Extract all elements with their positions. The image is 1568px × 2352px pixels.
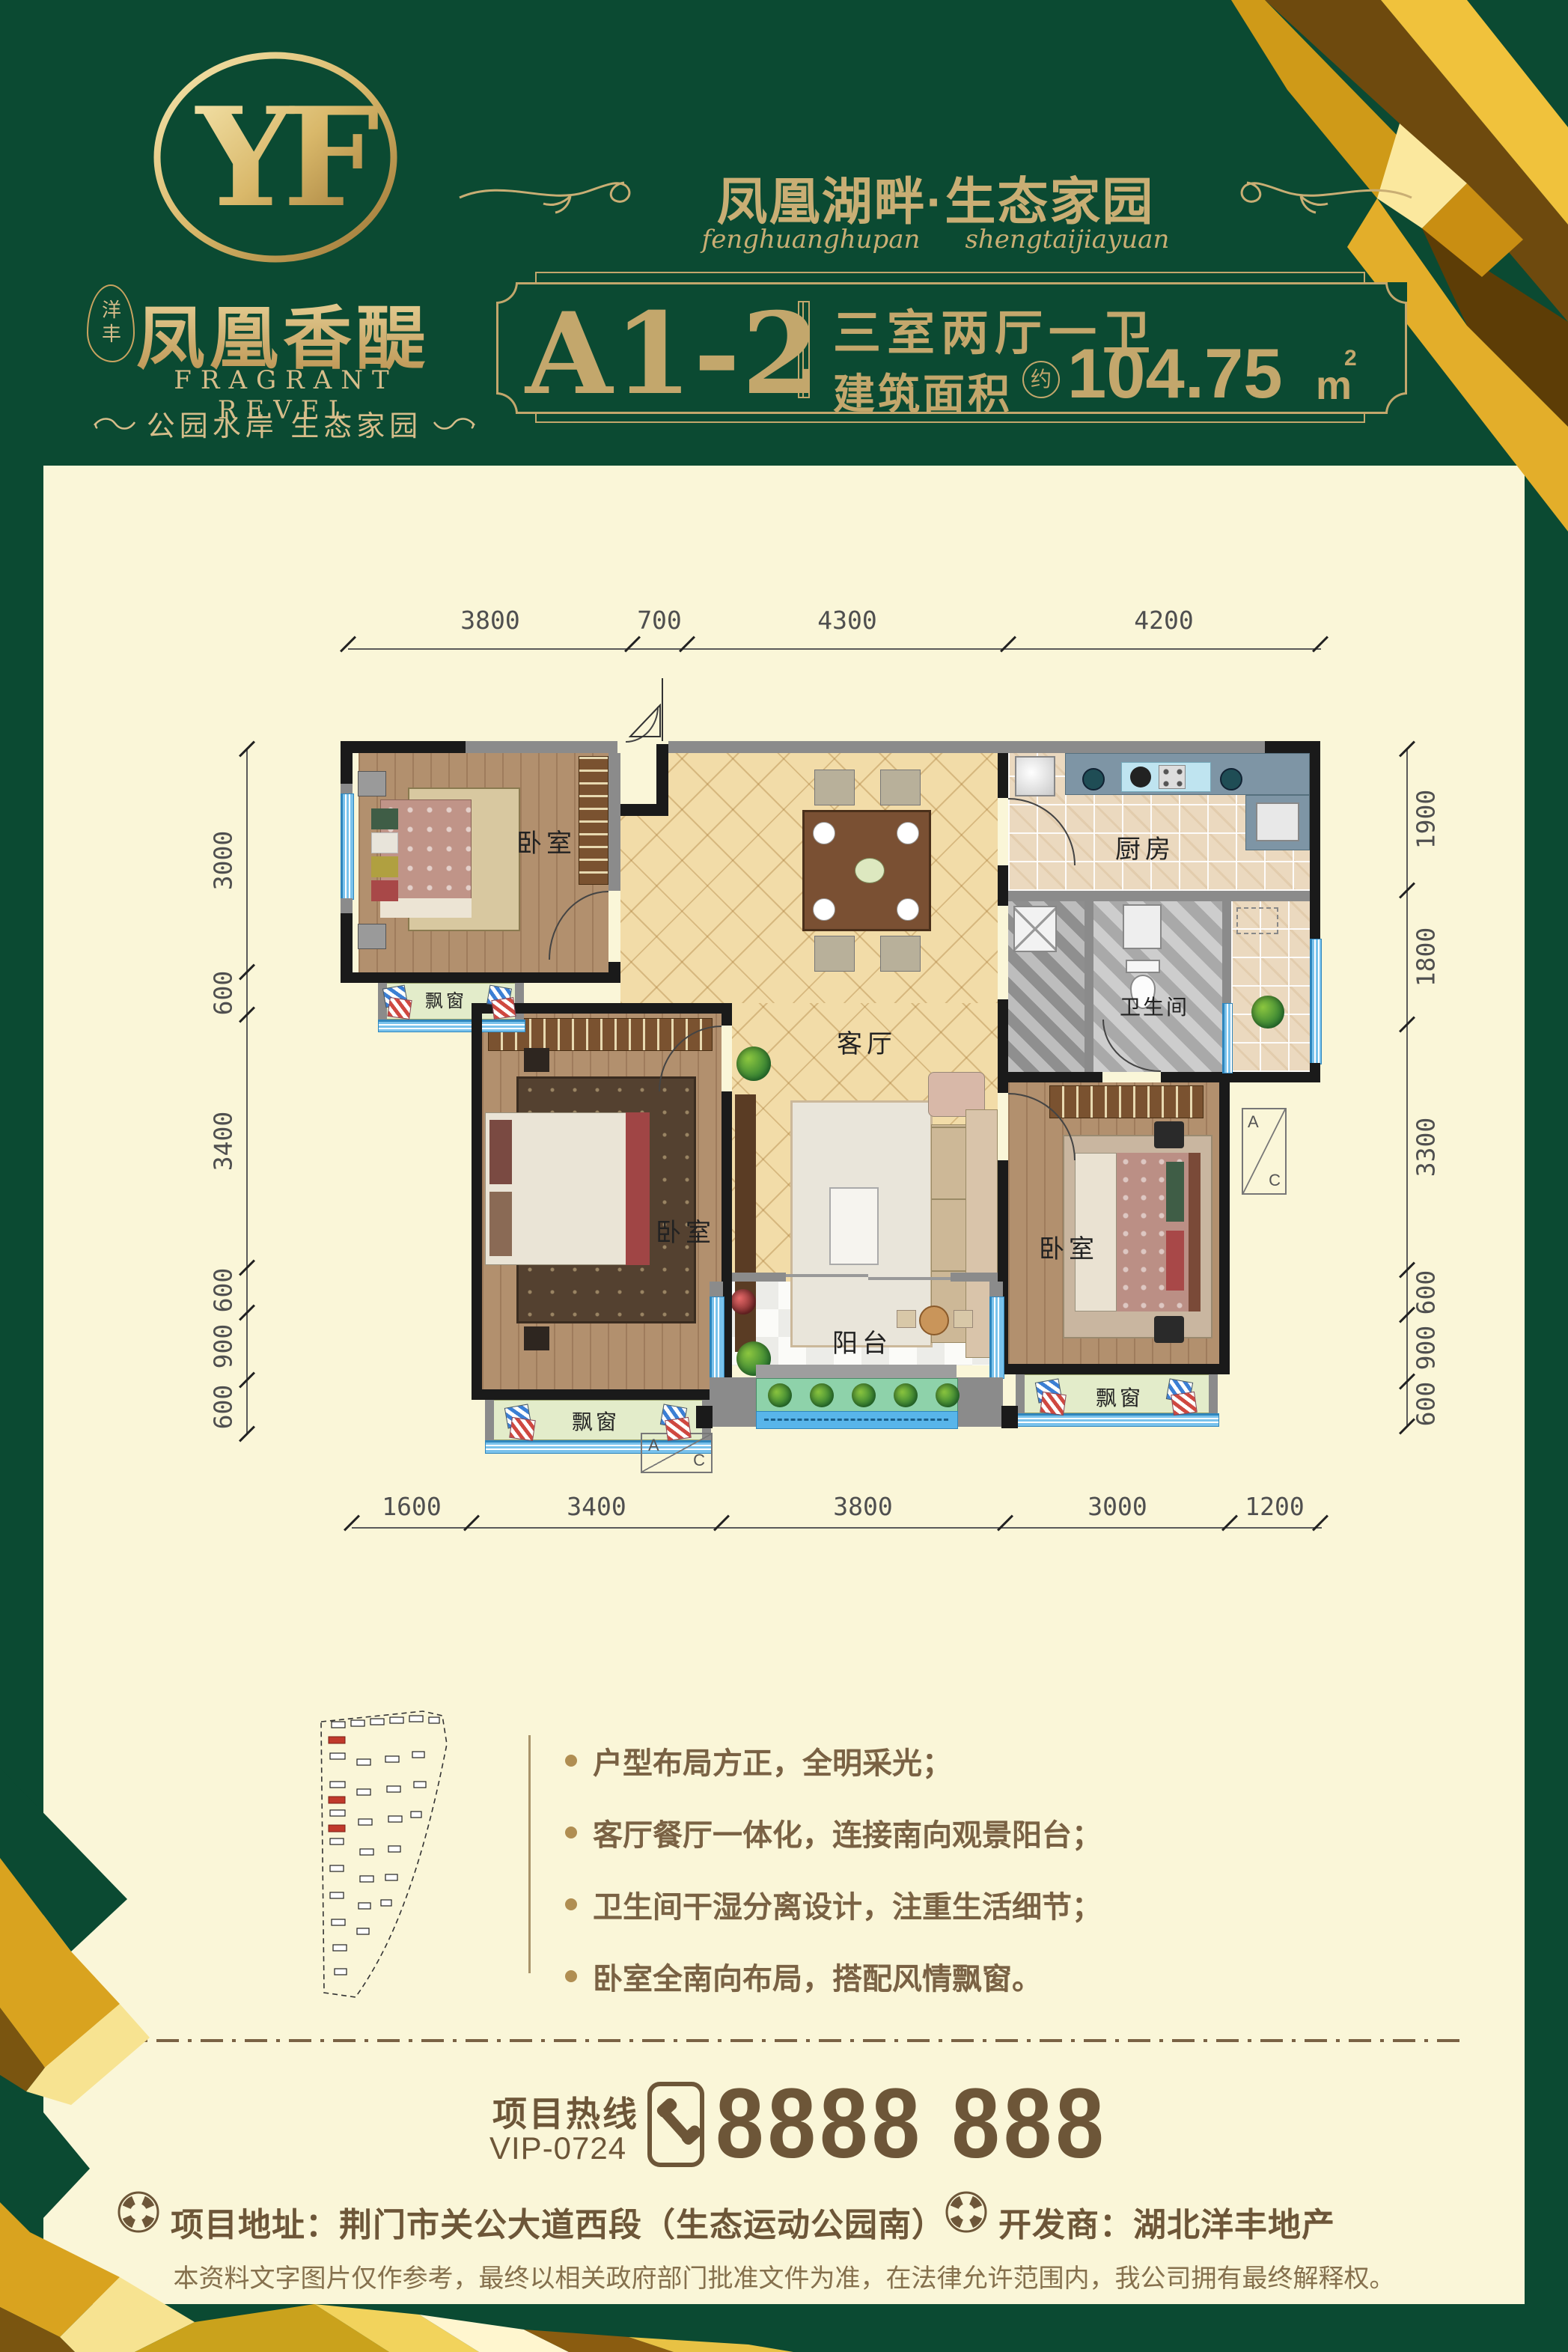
wall: [998, 753, 1008, 798]
balcony-pier: [710, 1377, 756, 1427]
wall: [1219, 1082, 1230, 1374]
window: [341, 793, 354, 900]
window: [1016, 1413, 1219, 1427]
balcony-chair: [897, 1310, 916, 1328]
pillow: [371, 832, 398, 853]
wall: [1310, 901, 1320, 939]
dim-bottom-4: 3000: [1065, 1494, 1170, 1519]
bay-window-label: 飘窗: [1096, 1388, 1144, 1409]
wall: [341, 898, 353, 913]
pillow: [371, 808, 398, 829]
sink-bowl: [1082, 768, 1105, 790]
balcony-chair: [954, 1310, 973, 1328]
wall: [466, 741, 617, 753]
stool: [358, 771, 386, 796]
window: [1310, 939, 1322, 1064]
dim-top-3: 4300: [795, 608, 900, 633]
dishwasher: [1256, 802, 1299, 841]
wall: [989, 1282, 1003, 1297]
sink-bowl: [1220, 768, 1242, 790]
dim-line-bottom: [352, 1527, 1322, 1529]
dim-left-6: 600: [211, 1362, 236, 1452]
balcony-post: [696, 1406, 713, 1428]
wall: [998, 865, 1008, 906]
sliding-door: [786, 1274, 868, 1277]
bay-cushion-icon: [491, 997, 516, 1020]
flyer-page: YF 洋丰 凤凰香醍 FRAGRANT REVEL 公园水岸 生态家园 凤凰湖畔…: [0, 0, 1568, 2352]
plant: [1251, 996, 1284, 1029]
dim-bottom-1: 1600: [359, 1494, 464, 1519]
dim-bottom-5: 1200: [1222, 1494, 1327, 1519]
pillow: [489, 1192, 512, 1256]
wall: [1310, 1063, 1320, 1082]
plant: [736, 1046, 771, 1081]
bay-jamb: [485, 1400, 494, 1440]
wall: [1222, 901, 1231, 1003]
balcony-pier: [957, 1377, 1003, 1427]
stool: [524, 1326, 549, 1350]
wall: [1310, 741, 1320, 901]
balcony-parapet: [756, 1365, 957, 1378]
plant: [852, 1383, 876, 1407]
toilet-tank: [1126, 960, 1160, 973]
dim-top-4: 4200: [1111, 608, 1216, 633]
bay-jamb: [1209, 1374, 1218, 1413]
dining-chair: [880, 936, 921, 972]
bay-cushion-icon: [387, 997, 412, 1020]
wall: [608, 753, 620, 891]
dining-chair: [814, 770, 855, 805]
pillow: [1166, 1231, 1184, 1291]
wall: [617, 804, 668, 816]
dim-line-left: [246, 749, 248, 1434]
dim-left-2: 600: [211, 948, 236, 1038]
room-label-bedroom3: 卧室: [1039, 1237, 1099, 1262]
pillow: [1166, 1162, 1184, 1222]
gold-corner-decoration: [0, 1753, 823, 2352]
stool: [358, 924, 386, 949]
dim-top-1: 3800: [438, 608, 543, 633]
speaker: [1154, 1121, 1184, 1148]
plant: [810, 1383, 834, 1407]
plant: [936, 1383, 960, 1407]
dining-chair: [814, 936, 855, 972]
dining-chair: [880, 770, 921, 805]
wall: [1085, 901, 1093, 1072]
ac-letter-c: C: [693, 1451, 705, 1470]
entry-marker-arrow: [629, 704, 662, 738]
wall: [1008, 891, 1320, 901]
wall: [722, 1014, 732, 1026]
room-label-balcony: 阳台: [832, 1331, 892, 1356]
wall: [472, 1389, 732, 1400]
window: [378, 1020, 525, 1032]
drying-rack: [1236, 907, 1278, 934]
bay-window-label: 飘窗: [572, 1412, 620, 1433]
pillow: [371, 856, 398, 877]
wall: [341, 972, 620, 983]
wall: [998, 1082, 1008, 1093]
wall: [341, 784, 353, 793]
bed-runner: [626, 1112, 650, 1265]
dim-right-3: 3300: [1414, 1103, 1439, 1192]
dim-right-6: 600: [1414, 1359, 1439, 1449]
wall: [998, 1072, 1102, 1082]
plate: [813, 822, 835, 844]
vanity: [1123, 904, 1162, 949]
wall: [998, 741, 1265, 753]
dim-line-top: [348, 648, 1321, 650]
room-label-living: 客厅: [837, 1032, 897, 1057]
dim-top-2: 700: [607, 608, 712, 633]
dim-right-2: 1800: [1414, 913, 1439, 1002]
ac-letter-a: A: [648, 1436, 659, 1455]
ac-letter-a: A: [1248, 1112, 1259, 1132]
balcony-water: [756, 1411, 958, 1429]
wall: [1161, 1072, 1320, 1082]
wall: [608, 962, 620, 983]
balcony-post: [1001, 1406, 1018, 1428]
bay-cushion-icon: [1171, 1392, 1198, 1416]
pillow: [371, 880, 398, 901]
salad-bowl: [855, 858, 885, 883]
lifebuoy-icon: [945, 2190, 988, 2234]
dim-line-right: [1406, 749, 1408, 1427]
developer: 开发商：湖北洋丰地产: [998, 2198, 1335, 2246]
room-label-bath: 卫生间: [1120, 997, 1189, 1018]
sliding-door: [868, 1277, 951, 1280]
wall: [472, 1014, 482, 1400]
bed: [1075, 1153, 1117, 1311]
plate: [897, 898, 919, 921]
dim-right-1: 1900: [1414, 775, 1439, 865]
room-label-kitchen: 厨房: [1115, 837, 1175, 862]
plate: [897, 822, 919, 844]
water-dash-line: [764, 1419, 948, 1421]
headboard: [1189, 1153, 1201, 1311]
wall: [1005, 1364, 1230, 1374]
wall: [732, 1273, 786, 1282]
wall: [341, 741, 466, 753]
room-label-bedroom1: 卧室: [516, 831, 576, 856]
pot: [1130, 767, 1151, 787]
wall: [998, 999, 1008, 1082]
bay-cushion-icon: [665, 1417, 692, 1441]
flower-pot: [730, 1289, 756, 1314]
window: [710, 1297, 724, 1379]
window: [1222, 1003, 1233, 1073]
ac-letter-c: C: [1269, 1171, 1281, 1190]
plate: [813, 898, 835, 921]
bay-window-label: 飘窗: [425, 993, 467, 1011]
wardrobe: [579, 756, 608, 885]
entry-marker-line: [662, 678, 663, 741]
coffee-table: [829, 1187, 879, 1265]
speaker: [1154, 1316, 1184, 1343]
wardrobe: [1049, 1085, 1204, 1118]
room-label-bedroom2: 卧室: [656, 1220, 716, 1246]
hob: [1159, 765, 1186, 789]
bay-cushion-icon: [1040, 1392, 1067, 1416]
dim-left-1: 3000: [211, 816, 236, 906]
plant: [768, 1383, 792, 1407]
dim-left-3: 3400: [211, 1097, 236, 1186]
dim-bottom-2: 3400: [544, 1494, 649, 1519]
bay-jamb: [515, 983, 524, 1020]
wall: [341, 741, 353, 784]
wall: [668, 741, 998, 753]
balcony-table: [919, 1306, 949, 1335]
pillow: [489, 1120, 512, 1184]
wall: [710, 1282, 723, 1297]
ac-platform: A C: [1242, 1108, 1287, 1195]
dim-bottom-3: 3800: [811, 1494, 915, 1519]
window: [989, 1297, 1004, 1379]
wall: [951, 1273, 998, 1282]
shower-tray: [1013, 906, 1057, 952]
stool: [524, 1048, 549, 1072]
fridge: [1015, 756, 1055, 796]
plant: [894, 1383, 918, 1407]
bay-cushion-icon: [509, 1417, 536, 1441]
